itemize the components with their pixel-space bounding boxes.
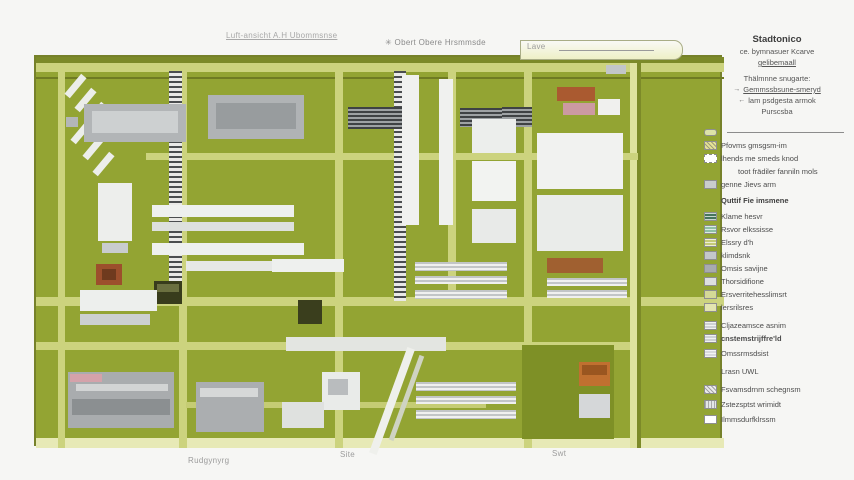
building bbox=[472, 209, 516, 243]
legend-entry-label: genne Jievs arm bbox=[721, 180, 776, 189]
building bbox=[282, 402, 324, 428]
legend-swatch bbox=[704, 334, 717, 343]
yard bbox=[522, 345, 614, 439]
legend-entry: Ersverritehesslimsrt bbox=[704, 288, 852, 301]
legend-panel: Stadtonico ce. bymnasuer Kcarve gelibema… bbox=[702, 34, 852, 426]
legend-route-2-label: lam psdgesta armok bbox=[748, 95, 816, 106]
building bbox=[152, 222, 294, 231]
striped-rows bbox=[415, 276, 507, 284]
legend-entry: Ilmmsdurfklrssm bbox=[704, 413, 852, 426]
red-roof-ridge bbox=[102, 269, 116, 280]
striped-roof bbox=[348, 107, 402, 129]
legend-entry: toot frädiler fanniln mols bbox=[704, 165, 852, 178]
legend-swatch bbox=[704, 251, 717, 260]
building bbox=[579, 394, 610, 418]
legend-swatch bbox=[704, 264, 717, 273]
striped-rows bbox=[416, 382, 516, 391]
legend-entry: lersrilsres bbox=[704, 301, 852, 314]
legend-entry: Thorsidifione bbox=[704, 275, 852, 288]
legend-swatch bbox=[704, 180, 717, 189]
building bbox=[152, 205, 294, 217]
building bbox=[152, 243, 304, 255]
building-roof bbox=[76, 384, 168, 391]
road-v1 bbox=[58, 63, 65, 448]
legend-entry: Cljazeamsce asnim bbox=[704, 319, 852, 332]
dark-building bbox=[298, 300, 322, 324]
legend-entry bbox=[704, 126, 852, 139]
legend-entry: Zstezsptst wrimidt bbox=[704, 398, 852, 411]
asterisk-icon: ✳ bbox=[385, 38, 392, 47]
legend-route-1-label: Gemmssbsune-smeryd bbox=[743, 84, 821, 95]
legend-entry-label: Cljazeamsce asnim bbox=[721, 321, 786, 330]
legend-swatch bbox=[704, 141, 717, 150]
legend-entry: klimdsnk bbox=[704, 249, 852, 262]
caption-bottom-right: Swt bbox=[552, 449, 566, 458]
pink-building bbox=[563, 103, 595, 115]
legend-entry-label: Pfovms gmsgsm-im bbox=[721, 141, 787, 150]
building bbox=[606, 65, 626, 74]
route-arrow-icon: → bbox=[733, 84, 740, 95]
legend-entries: Pfovms gmsgsm-im lhends me smeds knod to… bbox=[702, 126, 852, 426]
striped-rows bbox=[416, 396, 516, 404]
building-roof bbox=[216, 103, 296, 129]
building bbox=[80, 290, 157, 311]
legend-entry-label: Klame hesvr bbox=[721, 212, 763, 221]
caption-top-mid: ✳ Obert Obere Hrsmmsde bbox=[385, 38, 486, 47]
building bbox=[402, 75, 419, 225]
building-roof bbox=[92, 111, 178, 133]
page: Luft-ansicht A.H Ubommsnse ✳ Obert Obere… bbox=[0, 0, 854, 480]
legend-swatch bbox=[704, 225, 717, 234]
building bbox=[102, 243, 128, 253]
legend-entry-label: Rsvor elkssisse bbox=[721, 225, 773, 234]
legend-entry: genne Jievs arm bbox=[704, 178, 852, 191]
legend-entry-label: Elssry d'h bbox=[721, 238, 753, 247]
legend-entry: lhends me smeds knod bbox=[704, 152, 852, 165]
legend-swatch bbox=[704, 154, 717, 163]
legend-entry: cnstemstrijffre'ld bbox=[704, 332, 852, 345]
legend-route-2: ← lam psdgesta armok bbox=[702, 95, 852, 106]
brown-building bbox=[547, 258, 603, 273]
hedge-line bbox=[36, 77, 724, 79]
leader-line bbox=[559, 50, 654, 51]
legend-swatch bbox=[704, 303, 717, 312]
legend-subtitle-2: gelibemaall bbox=[702, 57, 852, 68]
caption-top-right: Lave bbox=[527, 42, 546, 51]
legend-entry-label: Omsis savijne bbox=[721, 264, 768, 273]
building-roof bbox=[328, 379, 348, 395]
building bbox=[72, 399, 170, 415]
building bbox=[537, 195, 623, 251]
route-arrow-icon: ← bbox=[738, 95, 745, 106]
hedge-right bbox=[637, 63, 641, 448]
paved-area bbox=[286, 337, 446, 351]
legend-entry: Elssry d'h bbox=[704, 236, 852, 249]
legend-entry-label: lhends me smeds knod bbox=[721, 154, 798, 163]
legend-swatch bbox=[704, 212, 717, 221]
legend-entry-label: klimdsnk bbox=[721, 251, 750, 260]
legend-entry-label: Ilmmsdurfklrssm bbox=[721, 415, 776, 424]
legend-swatch bbox=[704, 290, 717, 299]
legend-subtitle-4: Purscsba bbox=[702, 106, 852, 117]
legend-entry-label: Omssrmsdsist bbox=[721, 349, 769, 358]
legend-entry: Omssrmsdsist bbox=[704, 347, 852, 360]
building bbox=[537, 133, 623, 189]
building bbox=[80, 314, 150, 325]
legend-swatch bbox=[704, 129, 717, 136]
caption-bottom-left: Rudgynyrg bbox=[188, 456, 229, 465]
legend-swatch bbox=[704, 238, 717, 247]
red-roof-building bbox=[557, 87, 595, 101]
legend-entry-label: Zstezsptst wrimidt bbox=[721, 400, 781, 409]
legend-entry: Lrasn UWL bbox=[704, 365, 852, 378]
building bbox=[272, 259, 344, 272]
legend-entry-label: Ersverritehesslimsrt bbox=[721, 290, 787, 299]
legend-header: Stadtonico ce. bymnasuer Kcarve gelibema… bbox=[702, 34, 852, 117]
caption-bottom-center: Site bbox=[340, 450, 355, 459]
legend-entry: Rsvor elkssisse bbox=[704, 223, 852, 236]
legend-swatch bbox=[704, 321, 717, 330]
legend-subtitle-3: Thälmnne snugarte: bbox=[702, 73, 852, 84]
road-v6 bbox=[630, 63, 637, 448]
legend-swatch bbox=[704, 415, 717, 424]
striped-rows bbox=[415, 262, 507, 271]
orange-building-roof bbox=[582, 365, 607, 375]
caption-top-left: Luft-ansicht A.H Ubommsnse bbox=[226, 31, 337, 40]
legend-swatch bbox=[704, 385, 717, 394]
legend-swatch bbox=[704, 277, 717, 286]
building bbox=[92, 152, 114, 176]
legend-entry-label: cnstemstrijffre'ld bbox=[721, 334, 782, 343]
legend-entry-label: Thorsidifione bbox=[721, 277, 764, 286]
legend-entry: Pfovms gmsgsm-im bbox=[704, 139, 852, 152]
legend-entry-label: lersrilsres bbox=[721, 303, 753, 312]
striped-rows bbox=[415, 290, 507, 299]
building bbox=[66, 117, 78, 127]
building bbox=[439, 79, 453, 225]
legend-swatch bbox=[704, 349, 717, 358]
legend-route-1: → Gemmssbsune-smeryd bbox=[702, 84, 852, 95]
striped-rows bbox=[547, 290, 627, 298]
legend-entry-label: Fsvamsdrnm schegnsm bbox=[721, 385, 801, 394]
legend-entry: Omsis savijne bbox=[704, 262, 852, 275]
legend-entry: Fsvamsdrnm schegnsm bbox=[704, 383, 852, 396]
legend-subtitle-1: ce. bymnasuer Kcarve bbox=[702, 46, 852, 57]
dark-building-roof bbox=[157, 284, 179, 292]
striped-rows bbox=[547, 278, 627, 286]
building bbox=[598, 99, 620, 115]
legend-title: Stadtonico bbox=[702, 34, 852, 46]
legend-entry-label: Quttif Fie imsmene bbox=[721, 196, 789, 205]
pink-strip bbox=[70, 374, 102, 382]
site-map bbox=[34, 55, 722, 446]
building bbox=[472, 161, 516, 201]
building bbox=[472, 119, 516, 153]
legend-entry-label: toot frädiler fanniln mols bbox=[738, 167, 818, 176]
caption-top-mid-label: Obert Obere Hrsmmsde bbox=[395, 38, 486, 47]
striped-rows bbox=[416, 410, 516, 419]
legend-swatch bbox=[704, 400, 717, 409]
legend-entry: Klame hesvr bbox=[704, 210, 852, 223]
legend-entry-label: Lrasn UWL bbox=[721, 367, 759, 376]
legend-entry: Quttif Fie imsmene bbox=[704, 194, 852, 207]
building-roof bbox=[200, 388, 258, 397]
building bbox=[98, 183, 132, 241]
